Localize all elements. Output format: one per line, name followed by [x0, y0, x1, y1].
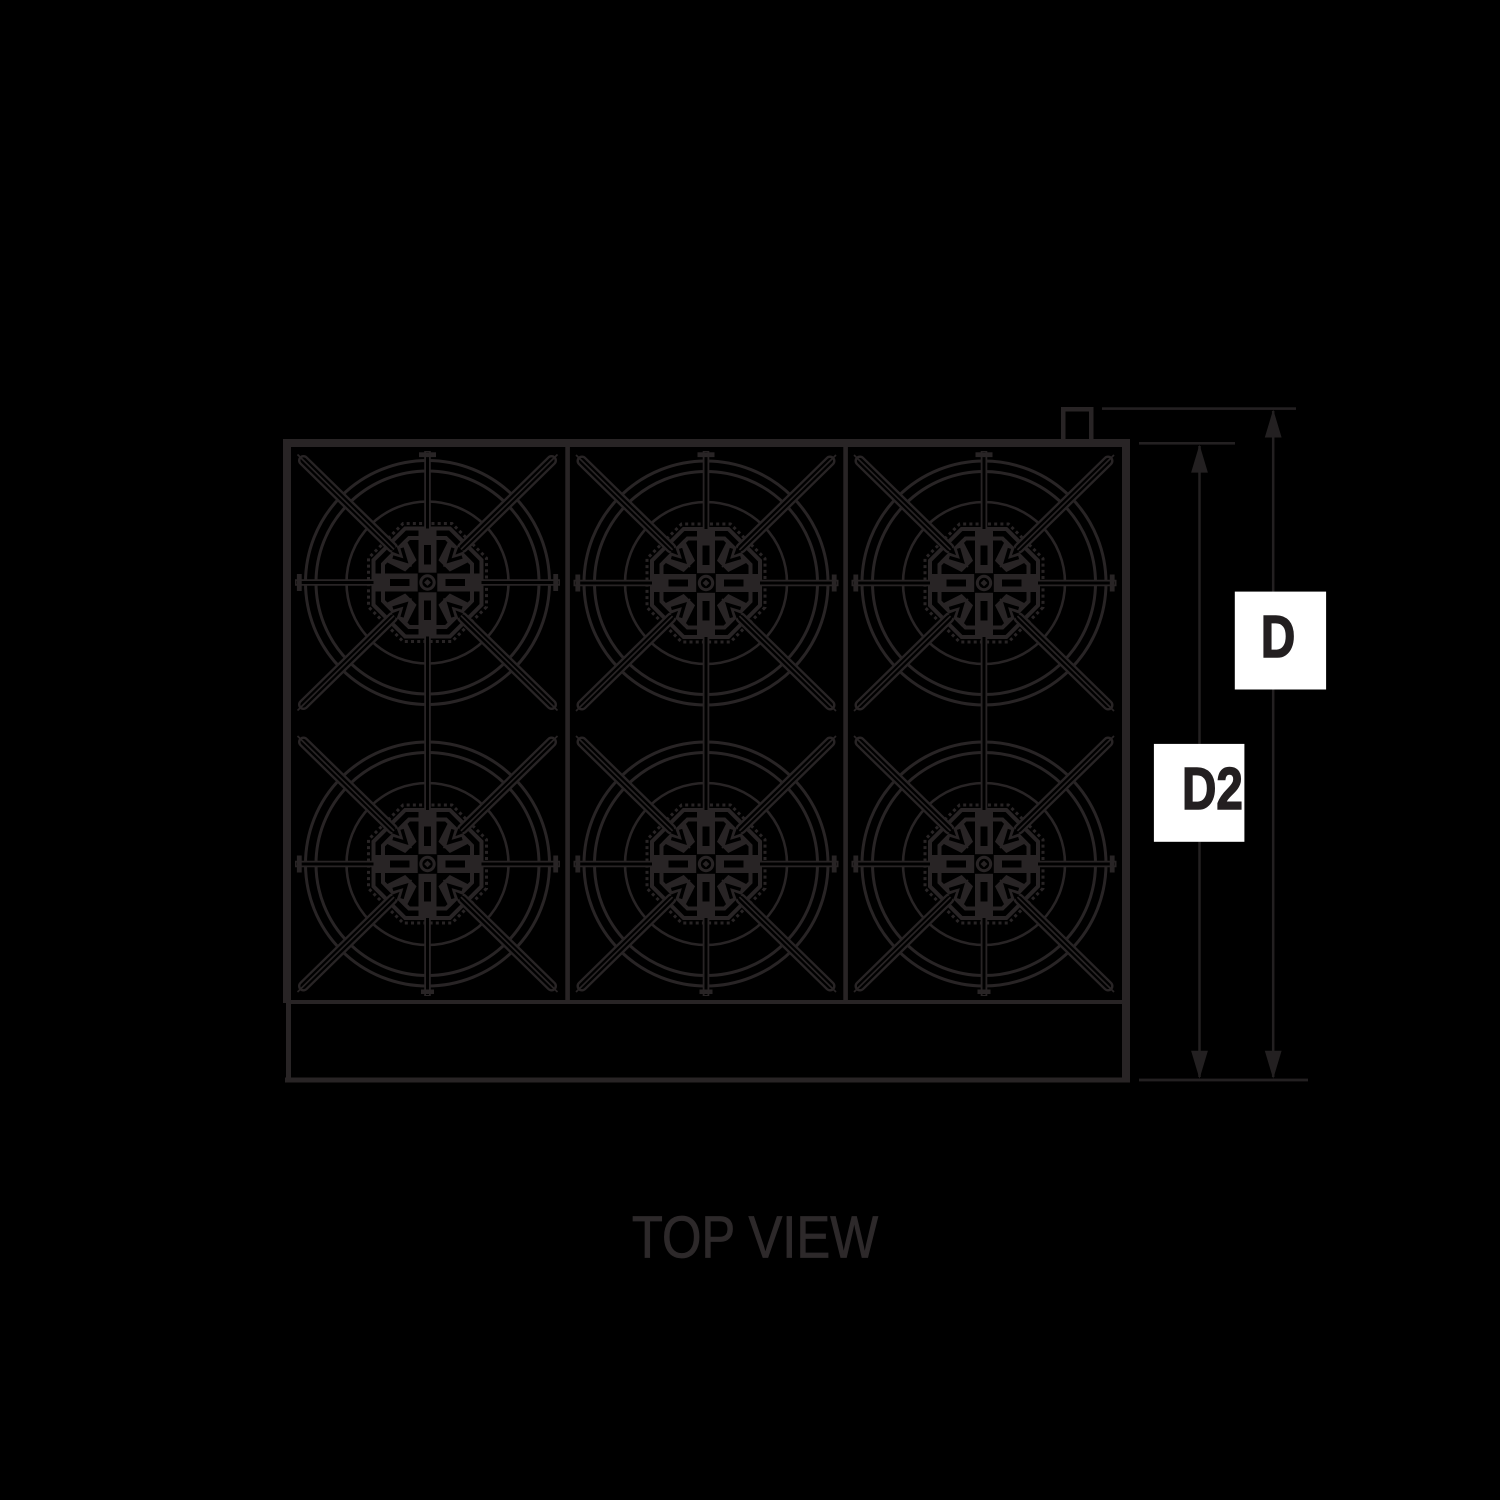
svg-text:D: D [1261, 604, 1295, 670]
svg-text:TOP VIEW: TOP VIEW [632, 1204, 878, 1270]
svg-text:D2: D2 [1182, 756, 1243, 822]
